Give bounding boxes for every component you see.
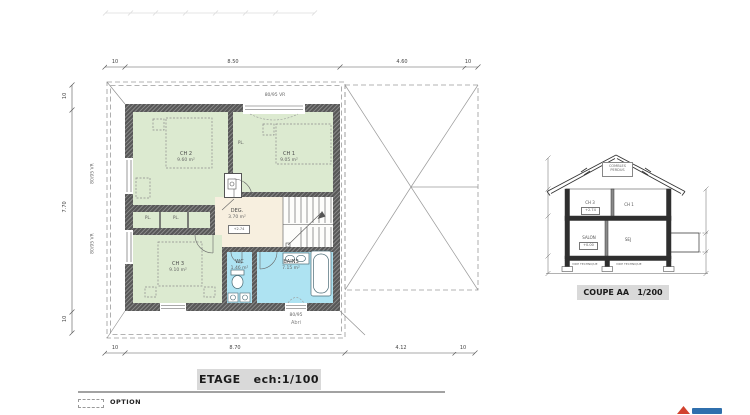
window-top [243,104,305,114]
dim-top-3: 4.60 [389,60,415,66]
dim-top-4: 10 [460,60,476,66]
section-room-lower-right: SEJ [620,238,636,243]
plan-title: ETAGE ech:1/100 [197,369,321,390]
drawing-sheet: CH 2 9.60 m² CH 1 9.05 m² DEG. 3.70 m² +… [0,0,750,415]
section-room-upper-right: CH 1 [620,203,638,208]
window-label-left-upper: 80/95 VR [90,154,95,194]
window-left-upper [118,158,133,194]
window-left-lower [118,230,133,264]
option-label: OPTION [110,398,141,406]
window-label-bottom: 80/95 [281,313,311,318]
room-label-ch2: CH 2 9.60 m² [164,152,208,163]
vide-technique-left: VIDE TECHNIQUE [572,262,598,265]
section-room-upper-left: CH 3 [580,201,600,206]
closet-label-1: PL. [141,216,155,221]
vide-technique-right: VIDE TECHNIQUE [616,262,642,265]
section-annex [671,233,708,252]
attic-note: COMBLES PERDUS [602,162,633,177]
closet-label-3: PL. [234,141,248,146]
dim-left-2: 7.70 [63,195,69,219]
section-title: COUPE AA 1/200 [577,285,669,300]
garage-roof-lines [345,85,478,290]
level-marker-deg: +2.74 [228,225,250,234]
shaft-box [224,173,242,198]
section-room-lower-left: SALON [578,236,600,241]
room-label-wc: WC 1.46 m² [227,260,252,271]
dim-top-2: 8.50 [219,60,247,66]
window-label-top: 80/95 VR [250,93,300,98]
dim-left-1: 10 [63,88,69,104]
room-area: 3.70 m² [221,215,253,220]
window-label-left-lower: 80/95 VR [90,224,95,264]
room-area: 1.46 m² [227,266,252,271]
room-area: 9.10 m² [156,268,200,273]
room-label-ch3: CH 3 9.10 m² [156,262,200,273]
room-deg [215,197,283,247]
section-level-lower: +0.00 [579,242,598,250]
dim-bottom-2: 8.70 [221,346,249,352]
room-area: 7.15 m² [269,266,313,271]
dim-bottom-3: 4.12 [388,346,414,352]
window-bottom-bains [285,303,307,311]
dim-left-3: 10 [63,311,69,327]
faint-top-chain [103,11,317,16]
room-area: 9.60 m² [164,158,208,163]
dim-top-1: 10 [107,60,123,66]
option-dashed-swatch [78,399,104,408]
attic-note-line2: PERDUS [603,168,632,172]
room-label-bains: BAINS 7.15 m² [269,260,313,271]
room-label-deg: DEG. 3.70 m² [221,209,253,220]
dim-bottom-4: 10 [455,346,471,352]
abri-label: Abri [281,321,311,327]
window-bottom-ch3 [160,303,186,311]
closet-label-2: PL. [169,216,183,221]
builder-logo-red-mark [677,406,690,414]
room-area: 9.05 m² [267,158,311,163]
room-label-ch1: CH 1 9.05 m² [267,152,311,163]
dim-bottom-1: 10 [107,346,123,352]
room-stairs [283,197,333,247]
section-level-upper: +2.74 [581,207,600,215]
builder-logo-blue-bar [692,408,722,414]
